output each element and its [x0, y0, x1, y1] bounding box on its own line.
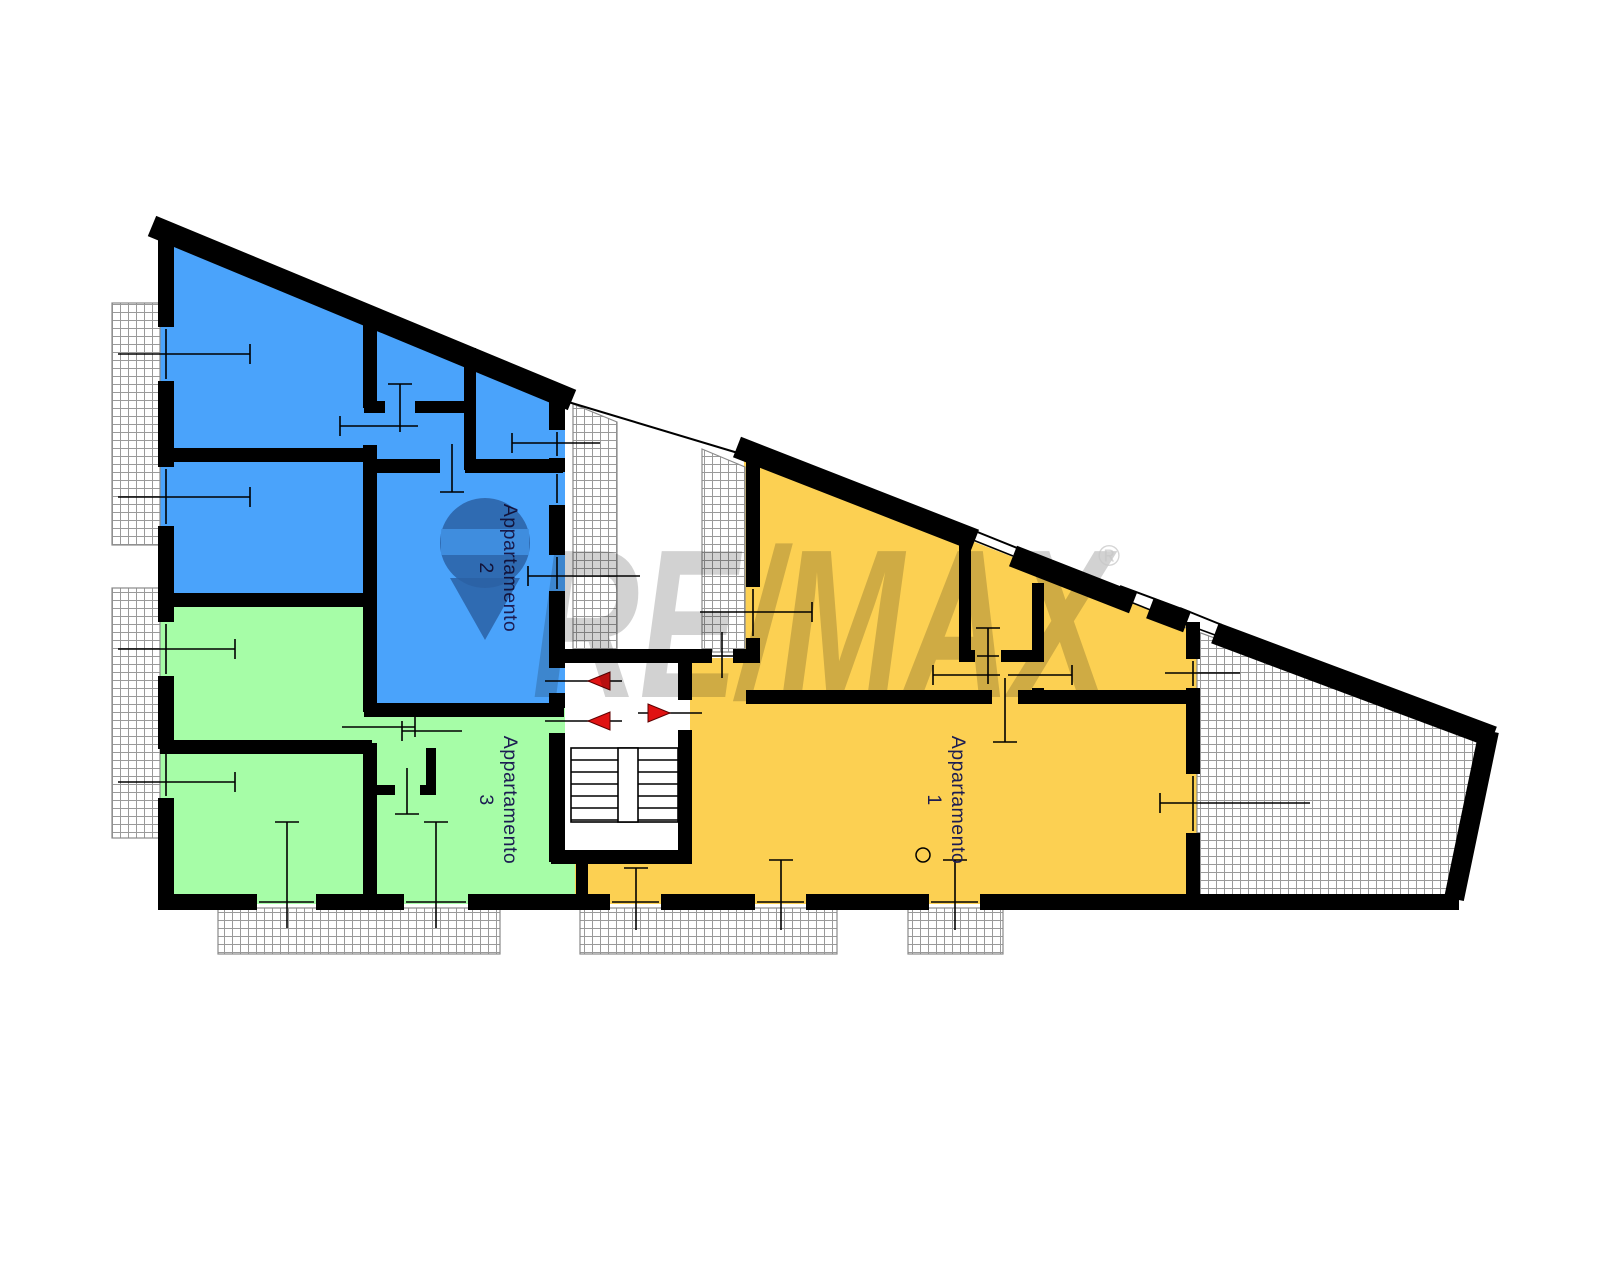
remax-watermark: RE/MAX®: [440, 498, 1120, 742]
floor-plan: Appartamento2Appartamento3Appartamento1R…: [0, 0, 1600, 1280]
registered-mark: ®: [1098, 540, 1120, 573]
terrace: [1165, 620, 1490, 900]
stair-divider: [618, 748, 638, 822]
wall: [1150, 608, 1187, 622]
balcony-top-left: [112, 303, 160, 545]
balcony-left: [112, 588, 160, 838]
balcony-bottom-center: [580, 908, 837, 954]
balcony-bottom-left: [218, 908, 500, 954]
floor-plan-page: Appartamento2Appartamento3Appartamento1R…: [0, 0, 1600, 1280]
remax-balloon-band: [441, 529, 529, 555]
remax-watermark-text: RE/MAX: [532, 505, 1117, 742]
